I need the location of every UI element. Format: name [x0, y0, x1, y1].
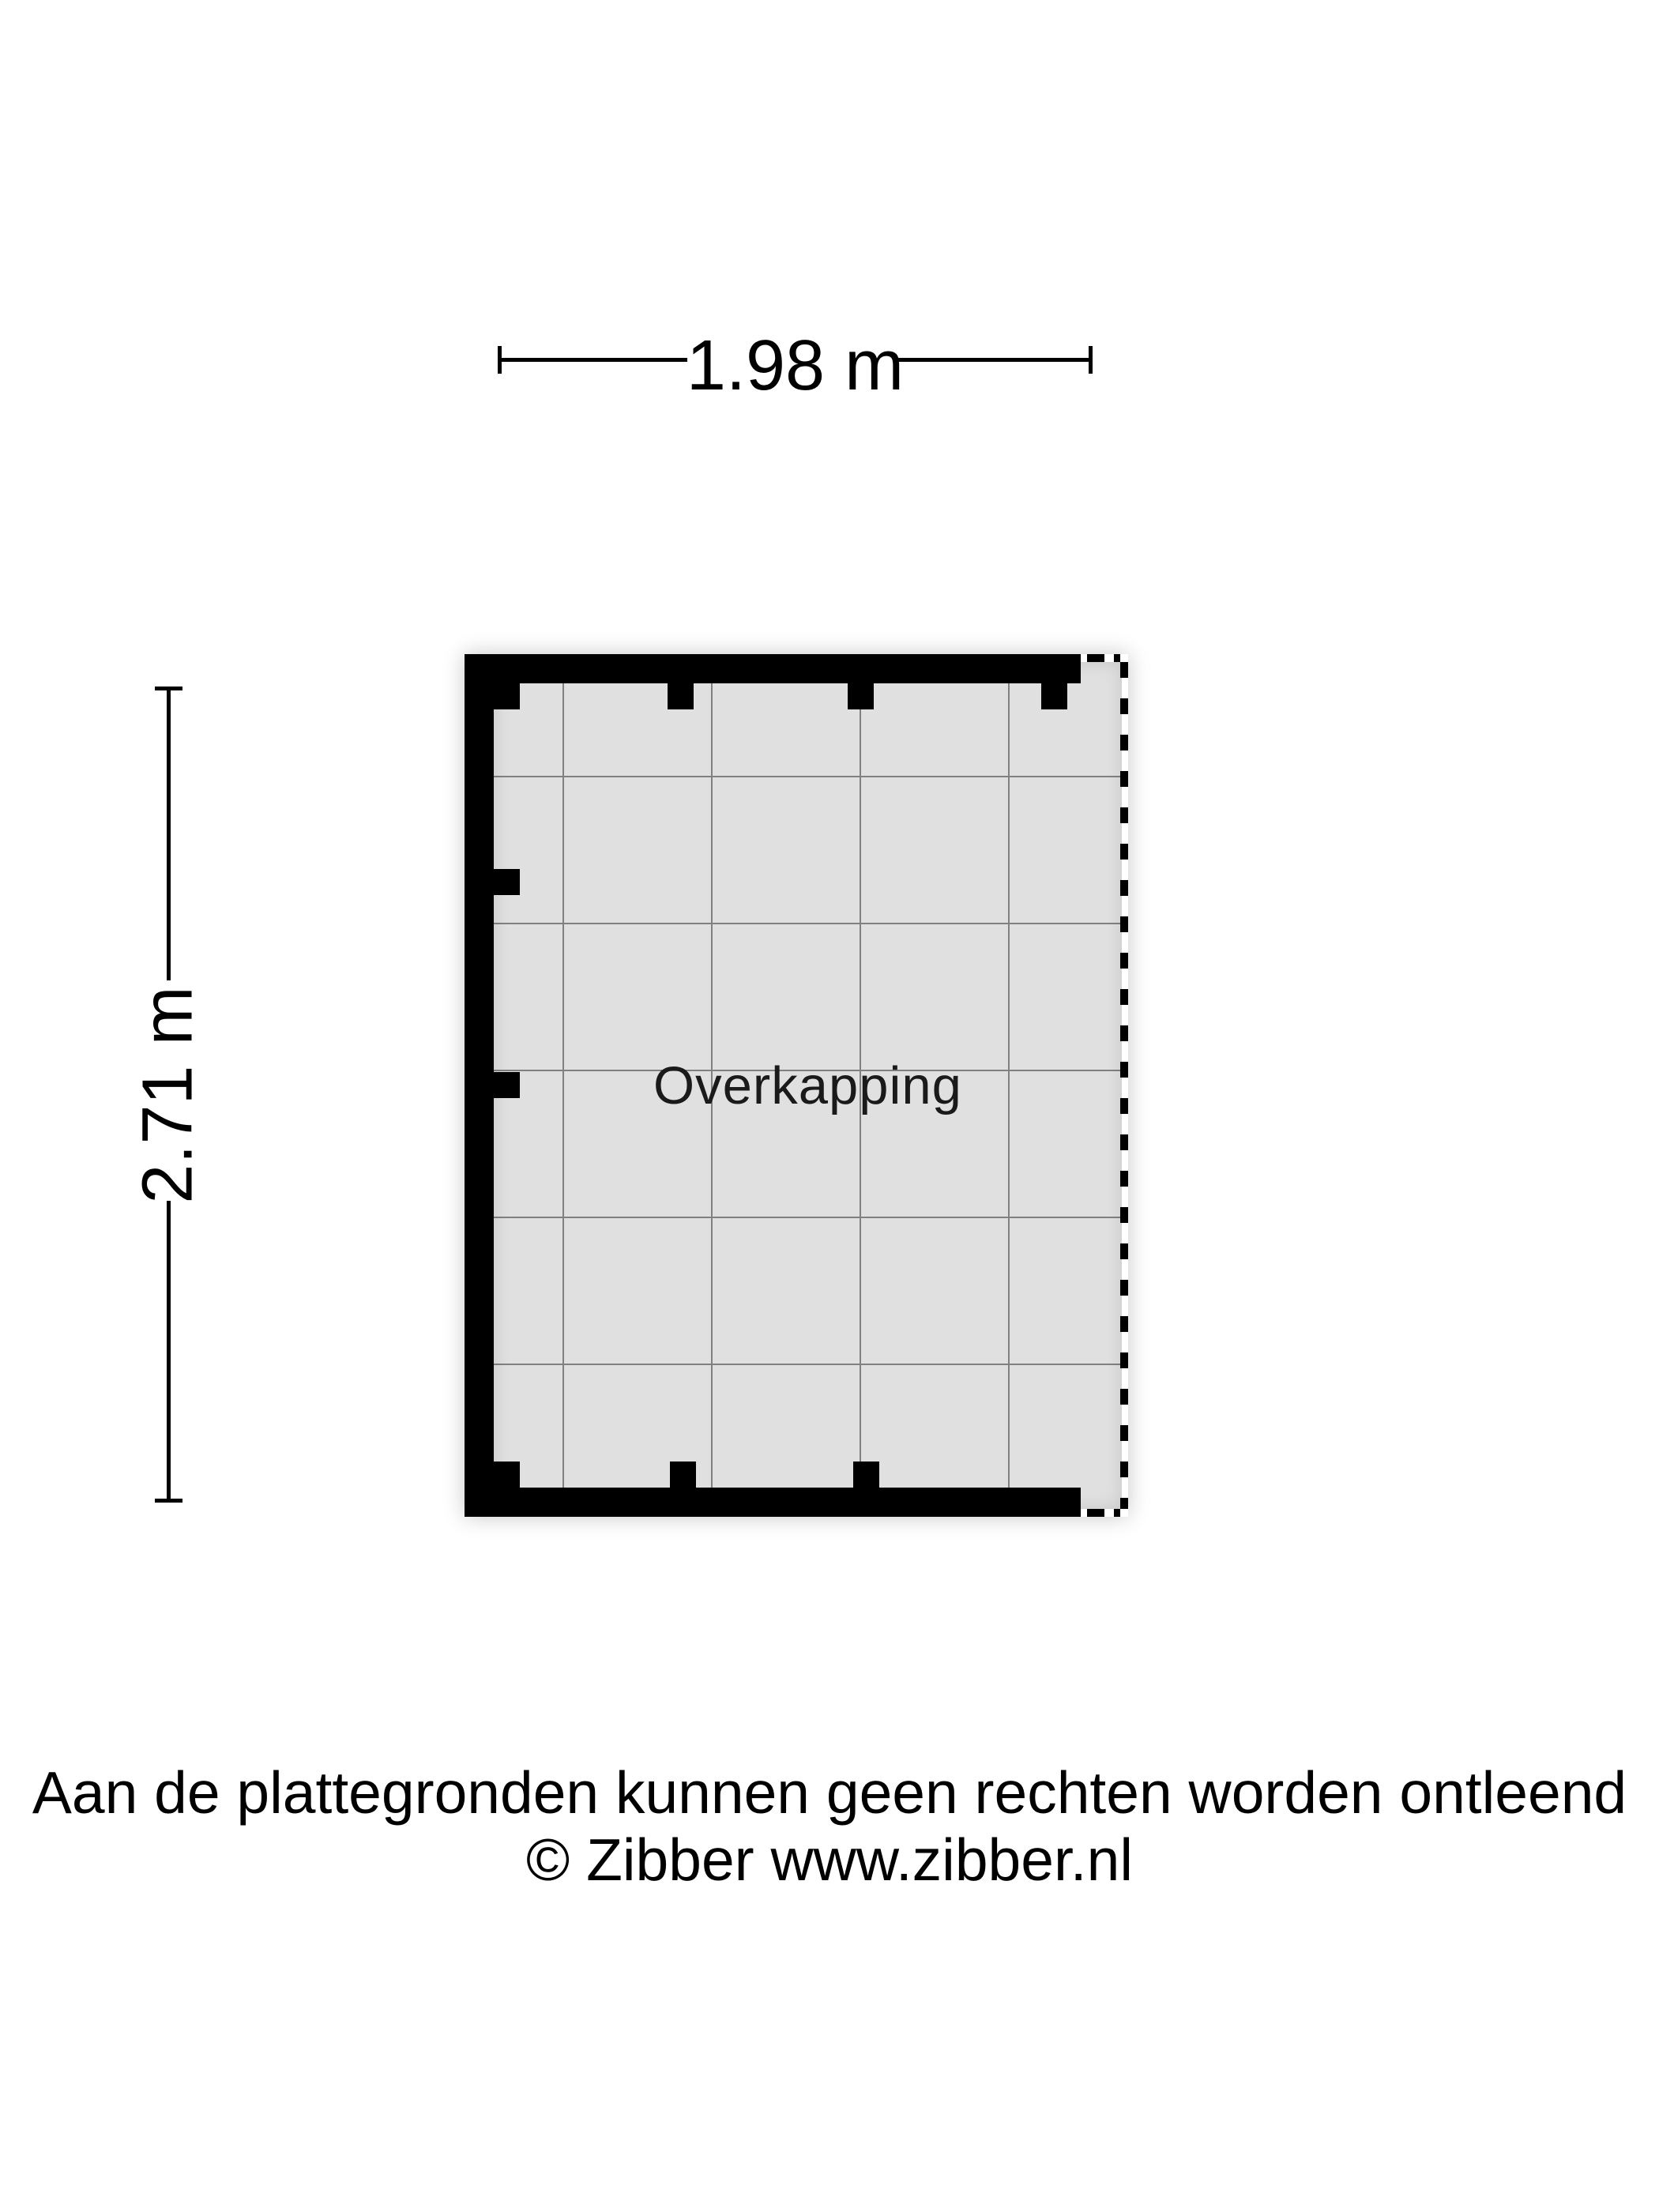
room-label: Overkapping [494, 662, 1122, 1509]
open-side-dash-top-corner [1082, 654, 1120, 662]
footer-disclaimer: Aan de plattegronden kunnen geen rechten… [0, 1763, 1659, 1823]
dimension-width-label: 1.98 m [498, 330, 1093, 401]
dimension-width-tick-right [1089, 346, 1093, 374]
open-side-dash-bottom-corner [1082, 1509, 1120, 1517]
floor-plan-page: 1.98 m 2.71 m Overkappin [0, 0, 1659, 2212]
wall-left [465, 654, 494, 1517]
dimension-height-label: 2.71 m [133, 986, 204, 1203]
dimension-width-line-right [897, 358, 1093, 362]
dimension-height-line-bottom [167, 1201, 171, 1503]
dimension-height-tick-bottom [155, 1499, 182, 1503]
floor-plan: Overkapping [465, 654, 1128, 1517]
footer-copyright: © Zibber www.zibber.nl [0, 1830, 1659, 1890]
